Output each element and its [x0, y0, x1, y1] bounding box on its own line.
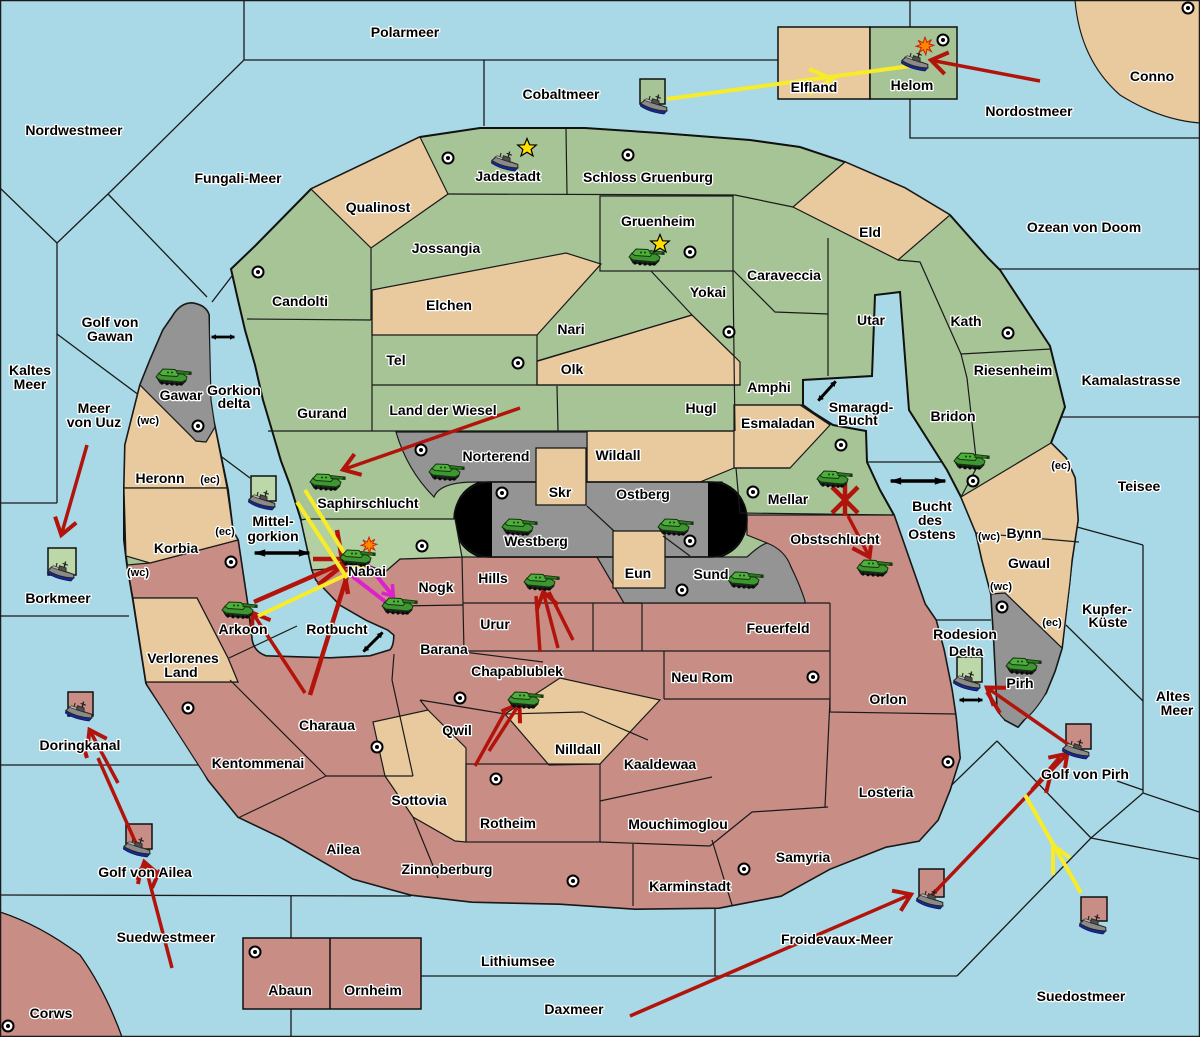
svg-text:Küste: Küste [1089, 614, 1128, 630]
svg-text:Sottovia: Sottovia [391, 792, 446, 808]
svg-text:(ec): (ec) [200, 474, 220, 486]
svg-text:Conno: Conno [1130, 68, 1174, 84]
svg-text:Arkoon: Arkoon [219, 621, 268, 637]
svg-text:Gruenheim: Gruenheim [621, 213, 695, 229]
svg-text:Meer: Meer [1161, 702, 1194, 718]
svg-text:Sund: Sund [694, 566, 729, 582]
svg-text:Candolti: Candolti [272, 293, 328, 309]
svg-text:Esmaladan: Esmaladan [741, 415, 815, 431]
svg-text:Schloss Gruenburg: Schloss Gruenburg [583, 169, 713, 185]
svg-text:(ec): (ec) [215, 526, 235, 538]
svg-text:(wc): (wc) [127, 567, 149, 579]
svg-text:Doringkanal: Doringkanal [40, 737, 121, 753]
svg-text:Daxmeer: Daxmeer [544, 1001, 604, 1017]
svg-text:Kentommenai: Kentommenai [212, 755, 305, 771]
svg-text:Helom: Helom [891, 77, 934, 93]
svg-text:Gawan: Gawan [87, 328, 133, 344]
svg-text:Rotbucht: Rotbucht [306, 621, 368, 637]
svg-text:Bynn: Bynn [1007, 525, 1042, 541]
svg-text:Delta: Delta [949, 643, 983, 659]
svg-text:Jossangia: Jossangia [412, 240, 481, 256]
svg-text:Riesenheim: Riesenheim [974, 362, 1053, 378]
svg-text:(wc): (wc) [978, 531, 1000, 543]
svg-text:(wc): (wc) [990, 581, 1012, 593]
svg-text:Pirh: Pirh [1006, 675, 1033, 691]
svg-text:Amphi: Amphi [747, 379, 791, 395]
svg-text:Ailea: Ailea [326, 841, 360, 857]
svg-text:Froidevaux-Meer: Froidevaux-Meer [781, 931, 894, 947]
svg-text:Charaua: Charaua [299, 717, 355, 733]
svg-text:Eun: Eun [625, 565, 651, 581]
svg-text:Polarmeer: Polarmeer [371, 24, 440, 40]
svg-text:Nordwestmeer: Nordwestmeer [25, 122, 123, 138]
svg-text:Westberg: Westberg [504, 533, 568, 549]
svg-text:Gawar: Gawar [160, 387, 203, 403]
svg-text:Wildall: Wildall [596, 447, 641, 463]
svg-text:Ornheim: Ornheim [344, 982, 402, 998]
svg-text:Mellar: Mellar [768, 491, 809, 507]
svg-text:Orlon: Orlon [869, 691, 906, 707]
svg-text:Qualinost: Qualinost [346, 199, 411, 215]
svg-text:gorkion: gorkion [247, 528, 298, 544]
svg-text:Heronn: Heronn [136, 470, 185, 486]
svg-text:Olk: Olk [561, 361, 584, 377]
svg-text:Yokai: Yokai [690, 284, 726, 300]
svg-text:delta: delta [218, 395, 251, 411]
svg-text:Cobaltmeer: Cobaltmeer [522, 86, 600, 102]
svg-text:Abaun: Abaun [268, 982, 312, 998]
svg-text:Bridon: Bridon [930, 408, 975, 424]
svg-text:Mittel-: Mittel- [252, 513, 294, 529]
svg-text:Urur: Urur [480, 616, 510, 632]
svg-text:Nogk: Nogk [419, 579, 454, 595]
svg-text:Hills: Hills [478, 570, 508, 586]
svg-text:Feuerfeld: Feuerfeld [746, 620, 809, 636]
svg-text:Golf von Pirh: Golf von Pirh [1041, 766, 1129, 782]
svg-text:Nilldall: Nilldall [555, 741, 601, 757]
svg-text:Saphirschlucht: Saphirschlucht [317, 495, 418, 511]
svg-text:Karminstadt: Karminstadt [649, 878, 731, 894]
svg-text:Borkmeer: Borkmeer [25, 590, 91, 606]
svg-text:(ec): (ec) [1042, 617, 1062, 629]
svg-text:Bucht: Bucht [838, 412, 878, 428]
svg-text:Tel: Tel [386, 352, 405, 368]
svg-text:Kath: Kath [950, 313, 981, 329]
svg-text:Rodesion: Rodesion [933, 626, 997, 642]
svg-text:Utar: Utar [857, 312, 886, 328]
svg-text:Zinnoberburg: Zinnoberburg [402, 861, 493, 877]
svg-text:Corws: Corws [30, 1005, 73, 1021]
svg-text:Neu Rom: Neu Rom [671, 669, 732, 685]
svg-text:Land der Wiesel: Land der Wiesel [389, 402, 496, 418]
svg-text:Korbia: Korbia [154, 540, 199, 556]
svg-text:Hugl: Hugl [685, 400, 716, 416]
svg-text:Ozean von Doom: Ozean von Doom [1027, 219, 1141, 235]
svg-text:Teisee: Teisee [1118, 478, 1161, 494]
svg-text:Qwil: Qwil [442, 722, 472, 738]
svg-text:Chapablublek: Chapablublek [471, 663, 563, 679]
svg-text:Kamalastrasse: Kamalastrasse [1082, 372, 1181, 388]
svg-text:Nari: Nari [557, 321, 584, 337]
svg-text:Kaaldewaa: Kaaldewaa [624, 756, 697, 772]
svg-text:Barana: Barana [420, 641, 468, 657]
svg-text:Rotheim: Rotheim [480, 815, 536, 831]
svg-text:Mouchimoglou: Mouchimoglou [628, 816, 728, 832]
svg-text:Nordostmeer: Nordostmeer [985, 103, 1073, 119]
svg-text:Eld: Eld [859, 224, 881, 240]
svg-text:Caraveccia: Caraveccia [747, 267, 821, 283]
svg-text:Losteria: Losteria [859, 784, 914, 800]
svg-text:Golf von Ailea: Golf von Ailea [98, 864, 192, 880]
svg-text:von Uuz: von Uuz [67, 414, 121, 430]
svg-text:Obstschlucht: Obstschlucht [790, 531, 880, 547]
svg-text:Lithiumsee: Lithiumsee [481, 953, 555, 969]
svg-text:Suedwestmeer: Suedwestmeer [117, 929, 216, 945]
svg-text:(wc): (wc) [137, 415, 159, 427]
svg-text:(ec): (ec) [1051, 460, 1071, 472]
svg-text:Jadestadt: Jadestadt [475, 168, 541, 184]
svg-text:Elfland: Elfland [791, 79, 838, 95]
svg-text:Gurand: Gurand [297, 405, 347, 421]
svg-text:Fungali-Meer: Fungali-Meer [194, 170, 282, 186]
svg-text:Suedostmeer: Suedostmeer [1037, 988, 1126, 1004]
svg-text:Elchen: Elchen [426, 297, 472, 313]
svg-text:Meer: Meer [14, 376, 47, 392]
svg-text:Gwaul: Gwaul [1008, 555, 1050, 571]
svg-text:Land: Land [164, 664, 197, 680]
svg-text:Skr: Skr [549, 484, 572, 500]
svg-text:Ostberg: Ostberg [616, 486, 670, 502]
svg-text:Norterend: Norterend [463, 448, 530, 464]
svg-text:Nabai: Nabai [348, 563, 386, 579]
svg-text:Ostens: Ostens [908, 526, 956, 542]
svg-text:Samyria: Samyria [776, 849, 831, 865]
